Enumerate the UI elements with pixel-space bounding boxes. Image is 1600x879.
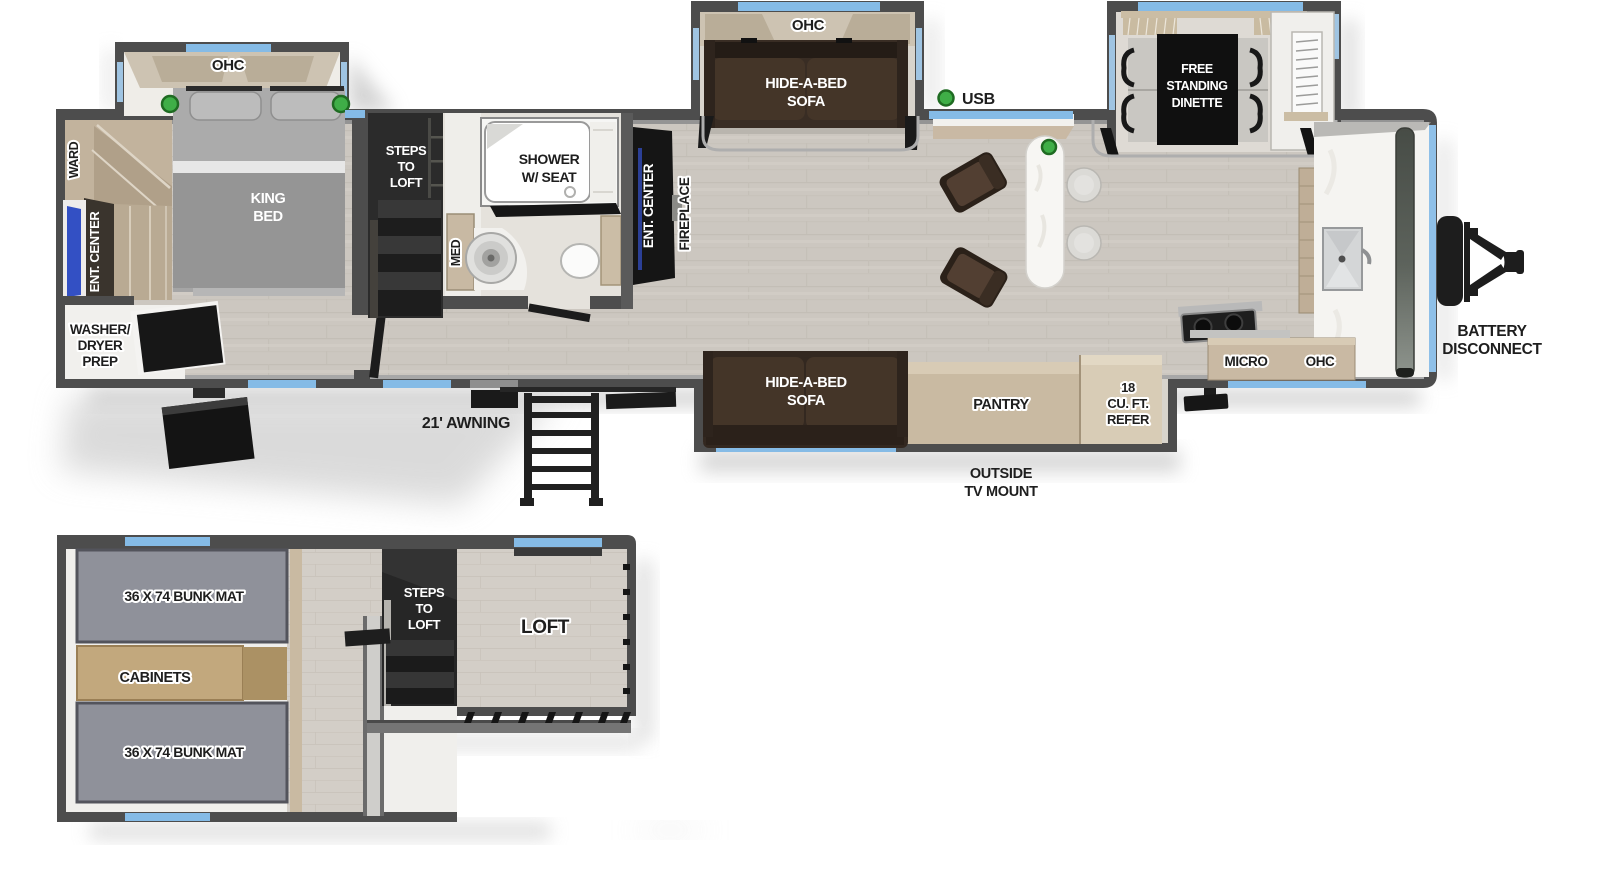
svg-text:18: 18 xyxy=(1121,380,1135,395)
svg-text:WARD: WARD xyxy=(67,141,81,178)
svg-text:CABINETS: CABINETS xyxy=(120,670,192,686)
svg-text:SOFA: SOFA xyxy=(787,94,826,110)
svg-text:ENT. CENTER: ENT. CENTER xyxy=(87,211,102,293)
svg-text:21' AWNING: 21' AWNING xyxy=(422,415,510,432)
svg-text:SHOWER: SHOWER xyxy=(519,151,580,167)
svg-text:FREE: FREE xyxy=(1181,62,1213,76)
svg-text:STEPS: STEPS xyxy=(386,143,427,158)
svg-text:DISCONNECT: DISCONNECT xyxy=(1442,341,1542,358)
svg-text:TO: TO xyxy=(397,159,414,174)
svg-text:STANDING: STANDING xyxy=(1166,79,1227,93)
svg-text:PREP: PREP xyxy=(82,354,118,369)
svg-text:MED: MED xyxy=(449,239,463,266)
svg-text:STEPS: STEPS xyxy=(404,585,445,600)
svg-text:OHC: OHC xyxy=(1306,354,1335,369)
svg-text:LOFT: LOFT xyxy=(521,617,570,638)
svg-text:FIREPLACE: FIREPLACE xyxy=(677,177,692,250)
svg-text:WASHER/: WASHER/ xyxy=(70,322,131,337)
svg-text:TV MOUNT: TV MOUNT xyxy=(964,484,1038,500)
svg-text:CU. FT.: CU. FT. xyxy=(1107,396,1148,411)
svg-text:SOFA: SOFA xyxy=(787,393,826,409)
svg-text:OHC: OHC xyxy=(212,57,245,74)
svg-text:DINETTE: DINETTE xyxy=(1172,96,1223,110)
svg-text:36 X 74 BUNK MAT: 36 X 74 BUNK MAT xyxy=(124,588,244,604)
svg-text:BATTERY: BATTERY xyxy=(1457,323,1527,340)
svg-text:LOFT: LOFT xyxy=(390,175,423,190)
svg-text:USB: USB xyxy=(962,91,995,108)
svg-text:ENT. CENTER: ENT. CENTER xyxy=(641,163,656,248)
svg-text:DRYER: DRYER xyxy=(78,338,123,353)
svg-text:KING: KING xyxy=(251,191,286,207)
svg-text:OHC: OHC xyxy=(792,17,825,34)
svg-text:W/ SEAT: W/ SEAT xyxy=(522,169,577,185)
svg-text:PANTRY: PANTRY xyxy=(973,397,1029,413)
svg-text:TO: TO xyxy=(415,601,432,616)
svg-text:OUTSIDE: OUTSIDE xyxy=(970,466,1033,482)
svg-text:36 X 74 BUNK MAT: 36 X 74 BUNK MAT xyxy=(124,744,244,760)
svg-text:HIDE-A-BED: HIDE-A-BED xyxy=(765,375,846,391)
svg-text:BED: BED xyxy=(253,209,282,225)
svg-text:REFER: REFER xyxy=(1107,412,1150,427)
svg-text:MICRO: MICRO xyxy=(1225,354,1268,369)
svg-text:LOFT: LOFT xyxy=(408,617,441,632)
svg-text:HIDE-A-BED: HIDE-A-BED xyxy=(765,76,846,92)
